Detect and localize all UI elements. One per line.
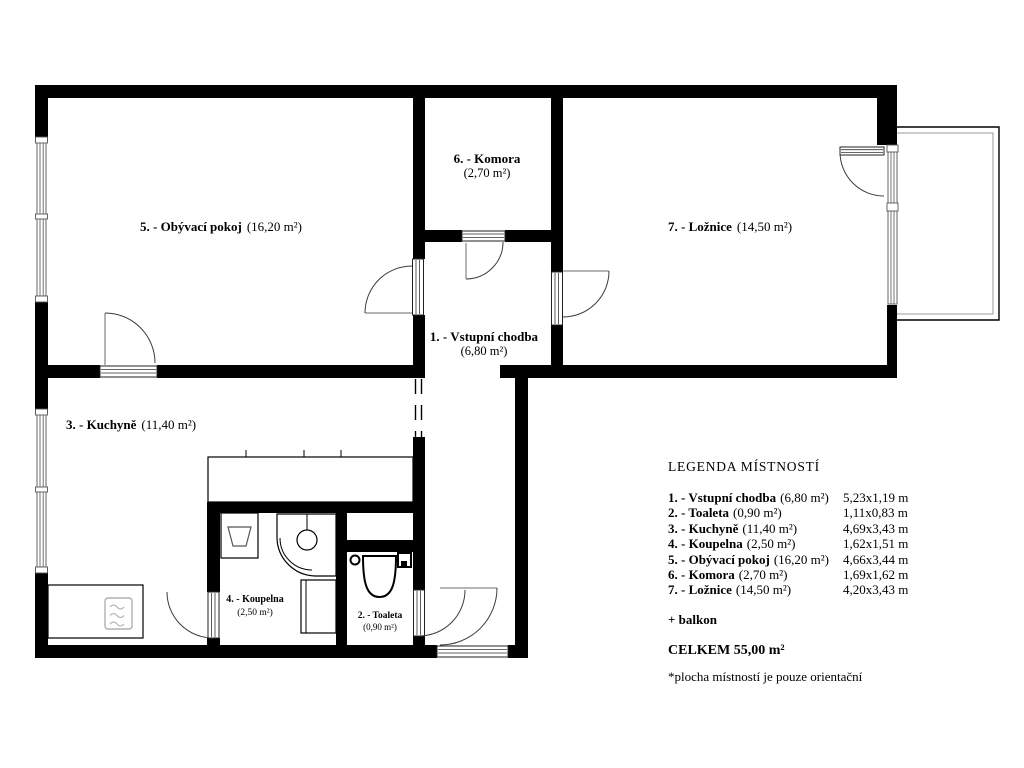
legend-row-2-area: (0,90 m²): [733, 505, 782, 520]
room-label-loznice-area: (14,50 m²): [737, 219, 792, 234]
wall-komora-bottom-a: [413, 230, 462, 242]
wall-left-c: [35, 568, 48, 658]
legend-row-5-label: 5. - Obývací pokoj: [668, 552, 770, 567]
legend-row-1-area: (6,80 m²): [780, 490, 829, 505]
svg-text:6. - Komora(2,70 m²): 6. - Komora(2,70 m²): [668, 567, 787, 582]
balcony-inner-edge: [897, 133, 993, 314]
wall-living-bottom-a: [35, 365, 100, 378]
toilet-paper-holder-icon: [398, 553, 411, 567]
wall-bottom-a: [35, 645, 437, 658]
toilet-bowl-icon: [363, 556, 396, 597]
wall-living-bottom-b: [157, 365, 425, 378]
wall-bedroom-bottom: [500, 365, 897, 378]
kitchen-counter-bottom: [48, 585, 143, 638]
living-hall-door: [365, 259, 424, 315]
wall-bath-left-b: [207, 638, 220, 647]
komora-door: [462, 231, 505, 279]
room-label-komora-area: (2,70 m²): [464, 166, 511, 180]
toilet-door: [414, 590, 466, 636]
svg-text:5. - Obývací pokoj(16,20 m²): 5. - Obývací pokoj(16,20 m²): [668, 552, 829, 567]
legend-row-2-dim: 1,11x0,83 m: [843, 505, 908, 520]
bathroom-cabinet-icon: [301, 580, 336, 633]
wall-toilet-niche: [347, 540, 413, 552]
shower-icon: [277, 514, 336, 576]
living-window: [36, 137, 48, 302]
room-label-kuchyne: 3. - Kuchyně(11,40 m²): [66, 417, 196, 432]
legend-row: 1. - Vstupní chodba(6,80 m²) 5,23x1,19 m: [668, 490, 908, 505]
room-label-chodba: 1. - Vstupní chodba: [430, 329, 539, 344]
room-label-loznice: 7. - Ložnice(14,50 m²): [668, 219, 792, 234]
room-label-koupelna: 4. - Koupelna: [226, 594, 284, 605]
wall-mid-e: [413, 636, 425, 658]
washing-machine-icon: [221, 513, 258, 558]
legend-row-6-area: (2,70 m²): [739, 567, 788, 582]
legend: LEGENDA MÍSTNOSTÍ 1. - Vstupní chodba(6,…: [668, 459, 908, 684]
svg-text:7. - Ložnice(14,50 m²): 7. - Ložnice(14,50 m²): [668, 582, 791, 597]
wall-mid-b: [413, 315, 425, 378]
room-label-living: 5. - Obývací pokoj(16,20 m²): [140, 219, 302, 234]
legend-footnote: *plocha místností je pouze orientační: [668, 669, 863, 684]
kitchen-pass-through: [416, 379, 422, 437]
bathroom-door: [167, 592, 219, 638]
legend-row-3-label: 3. - Kuchyně: [668, 521, 739, 536]
toilet-fixtures: [351, 553, 412, 597]
svg-text:2. - Toaleta(0,90 m²): 2. - Toaleta(0,90 m²): [668, 505, 782, 520]
legend-row-5-dim: 4,66x3,44 m: [843, 552, 908, 567]
wall-right-bottom: [887, 305, 897, 378]
legend-row-4-dim: 1,62x1,51 m: [843, 536, 908, 551]
legend-balcony-note: + balkon: [668, 612, 718, 627]
room-label-komora: 6. - Komora: [454, 151, 521, 166]
wall-left-b: [35, 302, 48, 414]
legend-row-4-label: 4. - Koupelna: [668, 536, 743, 551]
wall-top: [35, 85, 897, 98]
room-label-toaleta: 2. - Toaleta: [358, 611, 403, 621]
legend-row-5-area: (16,20 m²): [774, 552, 829, 567]
room-label-loznice-name: 7. - Ložnice: [668, 219, 732, 234]
living-kitchen-door: [100, 313, 157, 377]
legend-row-2-label: 2. - Toaleta: [668, 505, 730, 520]
legend-row: 4. - Koupelna(2,50 m²) 1,62x1,51 m: [668, 536, 908, 551]
legend-row: 2. - Toaleta(0,90 m²) 1,11x0,83 m: [668, 505, 908, 520]
wall-left-a: [35, 98, 48, 142]
legend-row: 3. - Kuchyně(11,40 m²) 4,69x3,43 m: [668, 521, 908, 536]
room-label-koupelna-area: (2,50 m²): [237, 607, 273, 618]
wall-right-top: [877, 97, 897, 145]
legend-row-3-area: (11,40 m²): [742, 521, 797, 536]
room-label-toaleta-area: (0,90 m²): [363, 622, 397, 632]
legend-row-7-dim: 4,20x3,43 m: [843, 582, 908, 597]
flush-button-icon: [351, 556, 360, 565]
legend-row: 5. - Obývací pokoj(16,20 m²) 4,66x3,44 m: [668, 552, 908, 567]
room-label-kuchyne-area: (11,40 m²): [141, 417, 196, 432]
legend-title: LEGENDA MÍSTNOSTÍ: [668, 459, 820, 474]
svg-text:3. - Kuchyně(11,40 m²): 3. - Kuchyně(11,40 m²): [668, 521, 797, 536]
legend-row-7-area: (14,50 m²): [736, 582, 791, 597]
floorplan-page: 5. - Obývací pokoj(16,20 m²) 6. - Komora…: [0, 0, 1024, 768]
wall-bath-left-a: [207, 513, 220, 592]
room-label-kuchyne-name: 3. - Kuchyně: [66, 417, 137, 432]
legend-row-4-area: (2,50 m²): [747, 536, 796, 551]
kitchen-window: [36, 409, 48, 573]
legend-row-6-label: 6. - Komora: [668, 567, 735, 582]
balcony-door: [840, 147, 884, 196]
entry-door: [437, 588, 508, 657]
room-label-living-area: (16,20 m²): [247, 219, 302, 234]
wall-hall-right: [515, 378, 528, 658]
legend-total: CELKEM 55,00 m²: [668, 643, 785, 658]
wall-komora-right-a: [551, 98, 563, 272]
legend-row: 7. - Ložnice(14,50 m²) 4,20x3,43 m: [668, 582, 908, 597]
legend-row-6-dim: 1,69x1,62 m: [843, 567, 908, 582]
balcony-window: [887, 145, 898, 304]
legend-row-3-dim: 4,69x3,43 m: [843, 521, 908, 536]
bedroom-door: [552, 271, 610, 325]
wall-bath-top: [207, 502, 425, 513]
legend-row-7-label: 7. - Ložnice: [668, 582, 732, 597]
room-label-living-name: 5. - Obývací pokoj: [140, 219, 242, 234]
balcony: [897, 127, 999, 320]
balcony-outer-edge: [897, 127, 999, 320]
room-label-chodba-area: (6,80 m²): [461, 344, 508, 358]
wall-mid-d: [413, 515, 425, 590]
legend-row-1-dim: 5,23x1,19 m: [843, 490, 908, 505]
stove-icon: [105, 598, 132, 629]
svg-text:1. - Vstupní chodba(6,80 m²): 1. - Vstupní chodba(6,80 m²): [668, 490, 829, 505]
svg-text:4. - Koupelna(2,50 m²): 4. - Koupelna(2,50 m²): [668, 536, 795, 551]
wall-bath-toilet: [336, 513, 347, 645]
legend-row: 6. - Komora(2,70 m²) 1,69x1,62 m: [668, 567, 908, 582]
kitchen-counter-top: [208, 450, 413, 502]
floorplan-svg: 5. - Obývací pokoj(16,20 m²) 6. - Komora…: [0, 0, 1024, 768]
legend-row-1-label: 1. - Vstupní chodba: [668, 490, 777, 505]
